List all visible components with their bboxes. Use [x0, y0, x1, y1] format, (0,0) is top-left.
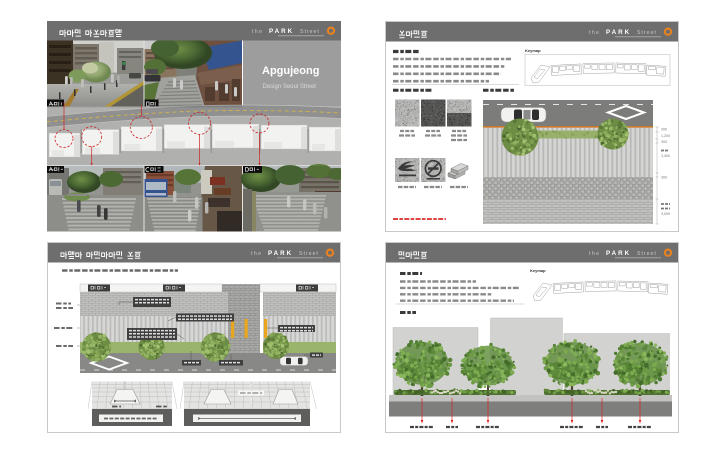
svg-text:the: the: [251, 251, 262, 257]
svg-text:Keymap: Keymap: [525, 48, 541, 53]
svg-text:the: the: [589, 30, 600, 36]
svg-text:3,400: 3,400: [661, 154, 670, 158]
svg-text:Street: Street: [637, 251, 657, 257]
svg-text:300: 300: [661, 176, 667, 180]
svg-text:3,000: 3,000: [661, 212, 670, 216]
svg-text:Apgujeong: Apgujeong: [262, 65, 319, 77]
svg-text:Keymap: Keymap: [530, 268, 546, 273]
svg-text:Street: Street: [637, 30, 657, 36]
svg-text:PARK: PARK: [268, 250, 293, 257]
svg-text:Street: Street: [300, 29, 320, 35]
svg-text:the: the: [252, 29, 263, 35]
svg-text:Design Seoul Street: Design Seoul Street: [263, 84, 317, 90]
svg-text:the: the: [589, 251, 600, 257]
svg-text:300: 300: [661, 140, 667, 144]
svg-text:1,200: 1,200: [661, 134, 670, 138]
svg-text:200: 200: [661, 128, 667, 132]
svg-text:PARK: PARK: [606, 29, 631, 36]
svg-text:Street: Street: [299, 251, 319, 257]
svg-text:PARK: PARK: [269, 28, 294, 35]
svg-text:PARK: PARK: [606, 250, 631, 257]
